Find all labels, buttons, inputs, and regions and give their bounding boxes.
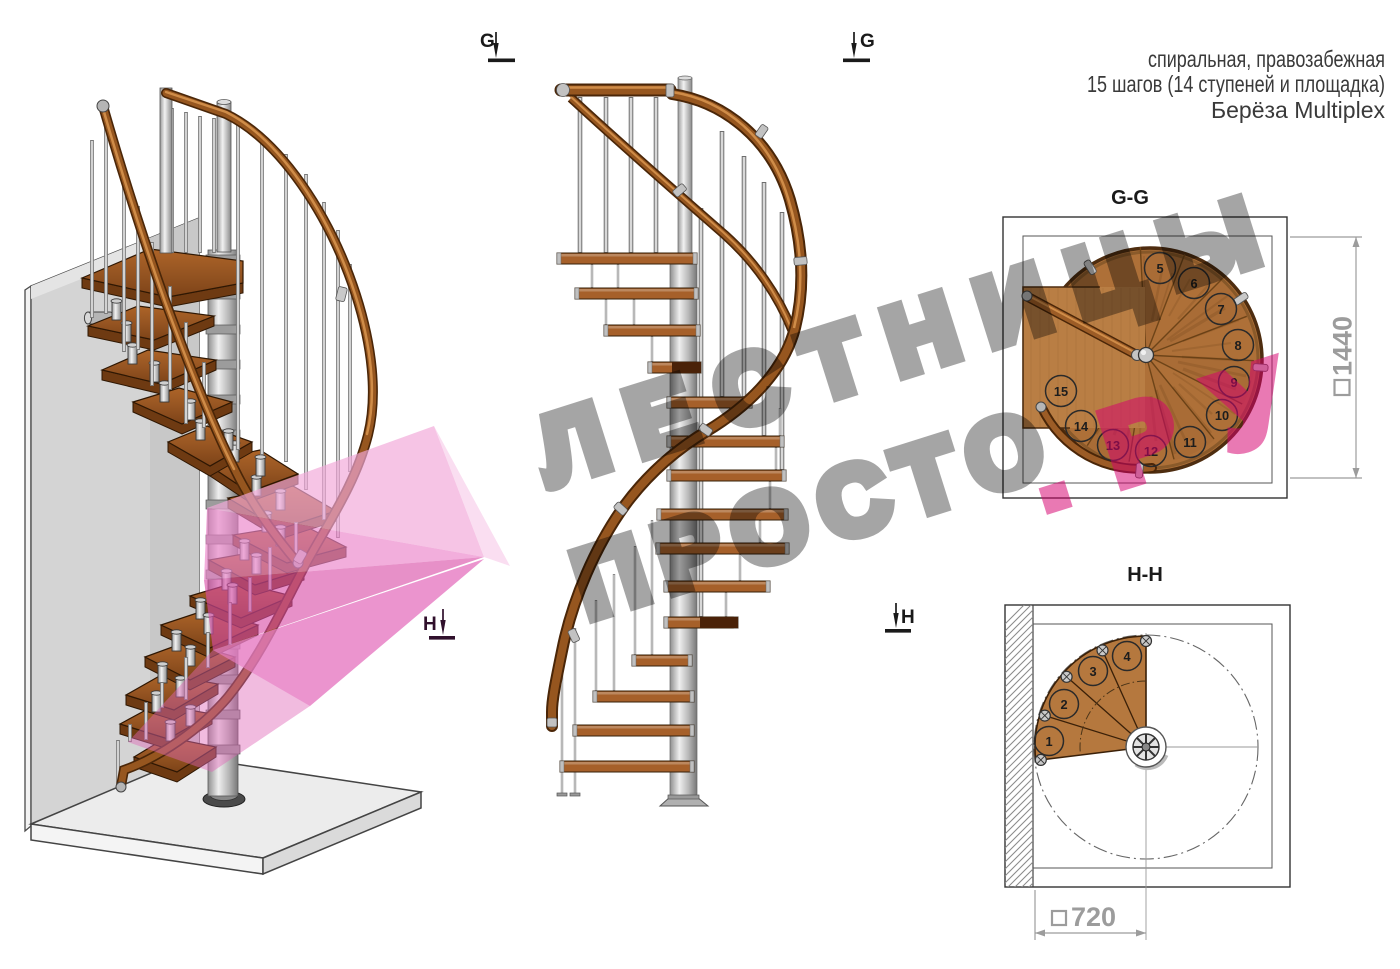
svg-text:720: 720 bbox=[1071, 902, 1116, 932]
svg-text:G: G bbox=[860, 31, 875, 52]
svg-text:1: 1 bbox=[1045, 734, 1052, 749]
svg-text:H-H: H-H bbox=[1127, 564, 1163, 586]
svg-text:H: H bbox=[423, 614, 437, 635]
svg-text:2: 2 bbox=[1060, 697, 1067, 712]
svg-text:7: 7 bbox=[1217, 302, 1224, 317]
svg-text:G: G bbox=[480, 31, 495, 52]
svg-text:15 шагов (14 ступеней и площад: 15 шагов (14 ступеней и площадка) bbox=[1087, 71, 1385, 97]
svg-text:Берёза Multiplex: Берёза Multiplex bbox=[1211, 97, 1385, 123]
svg-text:3: 3 bbox=[1089, 664, 1096, 679]
svg-text:H: H bbox=[901, 607, 915, 628]
svg-text:спиральная, правозабежная: спиральная, правозабежная bbox=[1148, 46, 1385, 72]
svg-text:15: 15 bbox=[1054, 384, 1068, 399]
svg-text:G-G: G-G bbox=[1111, 187, 1149, 209]
svg-text:4: 4 bbox=[1123, 649, 1131, 664]
svg-text:1440: 1440 bbox=[1328, 316, 1358, 376]
